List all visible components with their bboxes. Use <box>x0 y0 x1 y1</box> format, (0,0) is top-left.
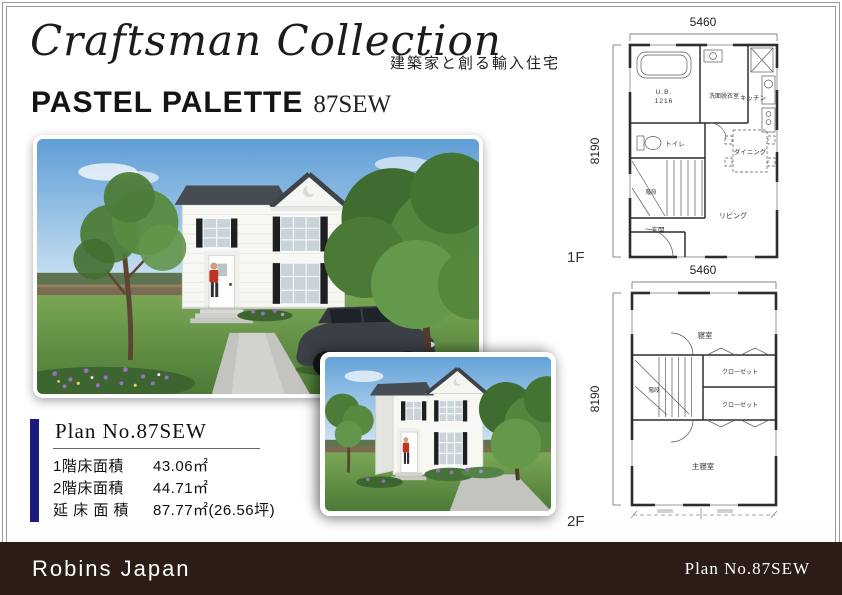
room-label-master-bedroom: 主寝室 <box>692 461 715 471</box>
dim-bracket-1f-left <box>613 45 621 257</box>
crescent-vent-cut <box>307 184 318 195</box>
floor-area-row-1f: 1階床面積 43.06㎡ <box>53 456 275 478</box>
floor-area-row-total: 延 床 面 積 87.77㎡(26.56坪) <box>53 500 275 522</box>
room-label-bath-size: 1216 <box>655 98 673 105</box>
room-label-bath: U.B. <box>656 89 673 96</box>
dim-1f-left: 8190 <box>588 137 602 164</box>
room-label-stairs-2f: 階段 <box>648 386 660 394</box>
floor-label-1f: 1F <box>567 249 585 266</box>
floorplan-column: 5460 8190 1F <box>555 10 840 545</box>
upper-window-right <box>273 217 328 252</box>
brand-tagline-jp: 建築家と創る輸入住宅 <box>390 52 560 73</box>
room-label-entrance: 玄関 <box>652 225 665 234</box>
area-value: 87.77㎡(26.56坪) <box>153 500 275 522</box>
series-name: PASTEL PALETTE <box>31 86 303 119</box>
front-door <box>401 432 418 472</box>
door-knob <box>229 283 232 286</box>
lower-window-right <box>273 263 328 304</box>
house <box>175 174 348 323</box>
room-label-dining: ダイニング <box>734 147 767 156</box>
room-label-closet-2: クローゼット <box>722 401 758 409</box>
plan-2f-floor <box>632 293 776 505</box>
plan-2f-bottom-dims <box>631 508 777 519</box>
dim-bracket-1f-top <box>630 34 777 41</box>
dim-bracket-2f-left <box>613 293 621 505</box>
floorplan-1f: 5460 8190 1F <box>567 15 780 277</box>
area-label: 2階床面積 <box>53 478 153 500</box>
upper-window-left <box>196 219 237 248</box>
series-title-row: PASTEL PALETTE87SEW <box>31 86 391 120</box>
area-label: 1階床面積 <box>53 456 153 478</box>
accent-bar <box>30 419 39 522</box>
upper-window-right <box>434 400 467 421</box>
room-label-washroom: 洗面脱衣室 <box>709 92 739 100</box>
lower-window-right <box>434 432 467 465</box>
plan-info-box: Plan No.87SEW 1階床面積 43.06㎡ 2階床面積 44.71㎡ … <box>30 419 275 522</box>
room-label-stairs: 階段 <box>645 188 657 196</box>
room-label-bedroom: 寝室 <box>698 330 713 340</box>
eave <box>271 207 348 211</box>
brochure-page: Craftsman Collection 建築家と創る輸入住宅 PASTEL P… <box>0 0 842 595</box>
floor-label-2f: 2F <box>567 513 585 530</box>
house-shadow <box>182 307 344 310</box>
house-side <box>376 386 394 475</box>
floor-area-list: 1階床面積 43.06㎡ 2階床面積 44.71㎡ 延 床 面 積 87.77㎡… <box>53 456 275 522</box>
inset-house-photo <box>320 352 556 516</box>
room-label-closet-1: クローゼット <box>722 368 758 376</box>
dim-2f-left: 8190 <box>588 385 602 412</box>
floorplan-2f: 8190 2F <box>567 282 779 530</box>
house-angle-illustration <box>325 357 551 511</box>
plan-number-title: Plan No.87SEW <box>53 419 260 449</box>
door-window <box>217 263 228 277</box>
footer-bar: Robins Japan Plan No.87SEW <box>0 542 842 595</box>
area-value: 44.71㎡ <box>153 478 209 500</box>
company-name: Robins Japan <box>32 556 191 582</box>
floor-area-row-2f: 2階床面積 44.71㎡ <box>53 478 275 500</box>
upper-window-left <box>401 401 426 420</box>
dim-1f-top: 5460 <box>690 15 717 29</box>
step <box>395 473 422 477</box>
model-code: 87SEW <box>313 91 391 118</box>
room-label-toilet: トイレ <box>665 141 685 148</box>
crescent-vent-cut <box>456 377 463 384</box>
dim-1f-bottom: 5460 <box>690 263 717 277</box>
cloud <box>344 370 383 382</box>
dim-bracket-2f-top <box>632 282 776 289</box>
room-label-kitchen: キッチン <box>740 94 766 102</box>
room-label-living: リビング <box>719 211 747 220</box>
footer-plan-number: Plan No.87SEW <box>685 559 810 579</box>
area-value: 43.06㎡ <box>153 456 209 478</box>
area-label: 延 床 面 積 <box>53 500 153 522</box>
roof-left <box>370 382 434 395</box>
